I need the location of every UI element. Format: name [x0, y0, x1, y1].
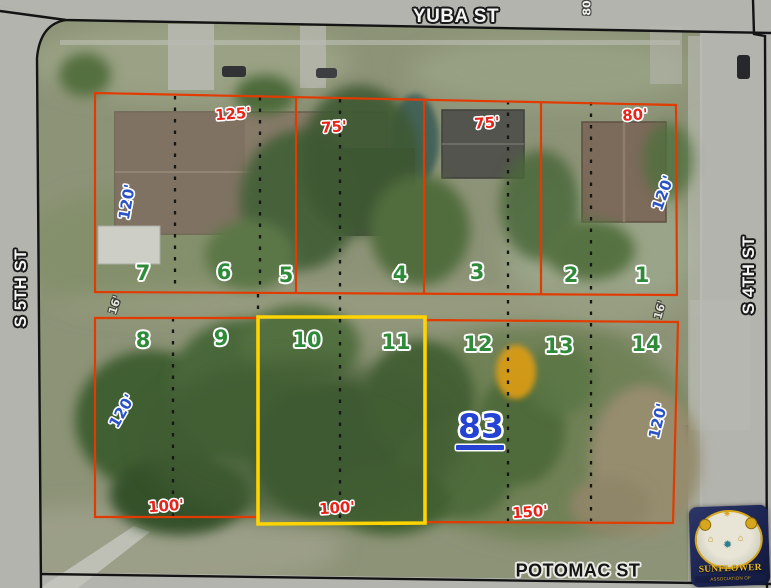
- sunflower-medallion-icon: [745, 517, 757, 529]
- highlighted-parcel-outline: [258, 317, 425, 524]
- logo-gold-ring: ✷ ⌂ ⌂ ✹: [694, 509, 764, 570]
- sunburst-icon: ✹: [723, 540, 733, 551]
- house-icon: ⌂: [708, 535, 714, 544]
- sunflower-logo: ✷ ⌂ ⌂ ✹ SUNFLOWER ASSOCIATION OF REALTOR…: [689, 505, 771, 588]
- lot-dashed-lines: [173, 96, 591, 522]
- aerial-plat-map: YUBA ST S 5TH ST S 4TH ST POTOMAC ST 80 …: [0, 0, 771, 588]
- logo-subtitle: ASSOCIATION OF REALTORS®: [695, 574, 766, 583]
- sun-rays-icon: ✷: [723, 510, 732, 520]
- sunflower-medallion-icon: [699, 519, 711, 531]
- house-icon: ⌂: [738, 534, 744, 543]
- parcel-number-underline: [456, 445, 504, 450]
- red-lot-outlines: [95, 93, 678, 523]
- plat-overlay: [0, 0, 771, 588]
